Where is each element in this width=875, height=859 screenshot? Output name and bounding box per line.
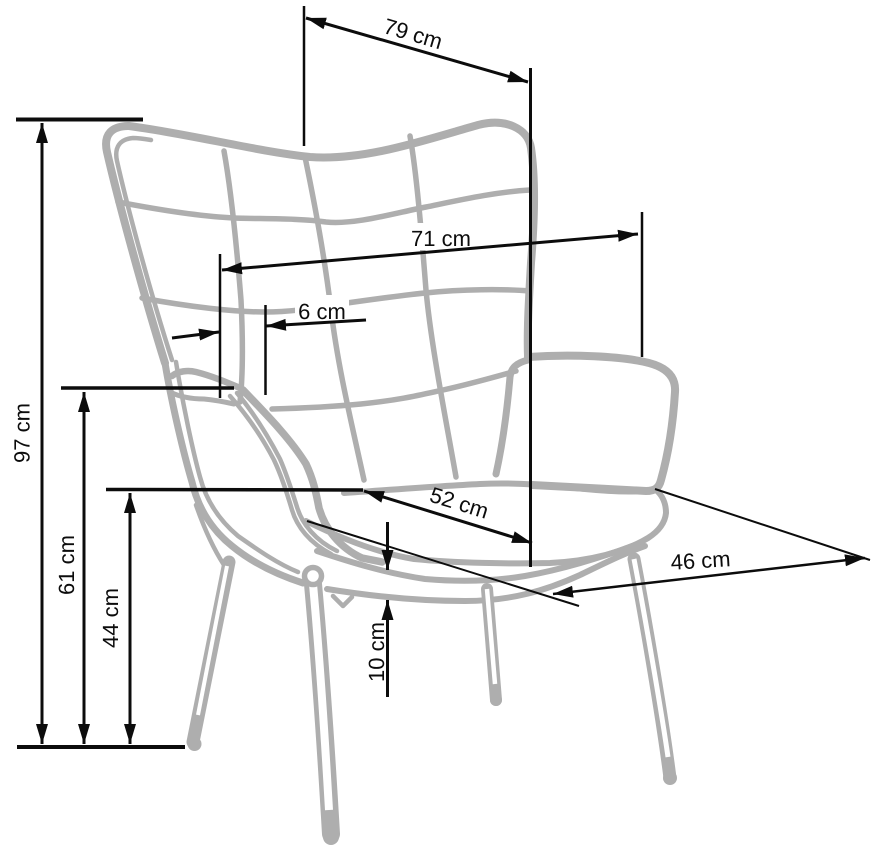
svg-text:52 cm: 52 cm [427,482,492,524]
svg-text:97 cm: 97 cm [10,403,35,463]
svg-text:61 cm: 61 cm [54,535,79,595]
svg-text:10 cm: 10 cm [364,622,389,682]
svg-text:71 cm: 71 cm [411,226,471,251]
svg-text:6 cm: 6 cm [298,299,346,324]
svg-text:46 cm: 46 cm [670,546,731,575]
svg-text:44 cm: 44 cm [98,588,123,648]
